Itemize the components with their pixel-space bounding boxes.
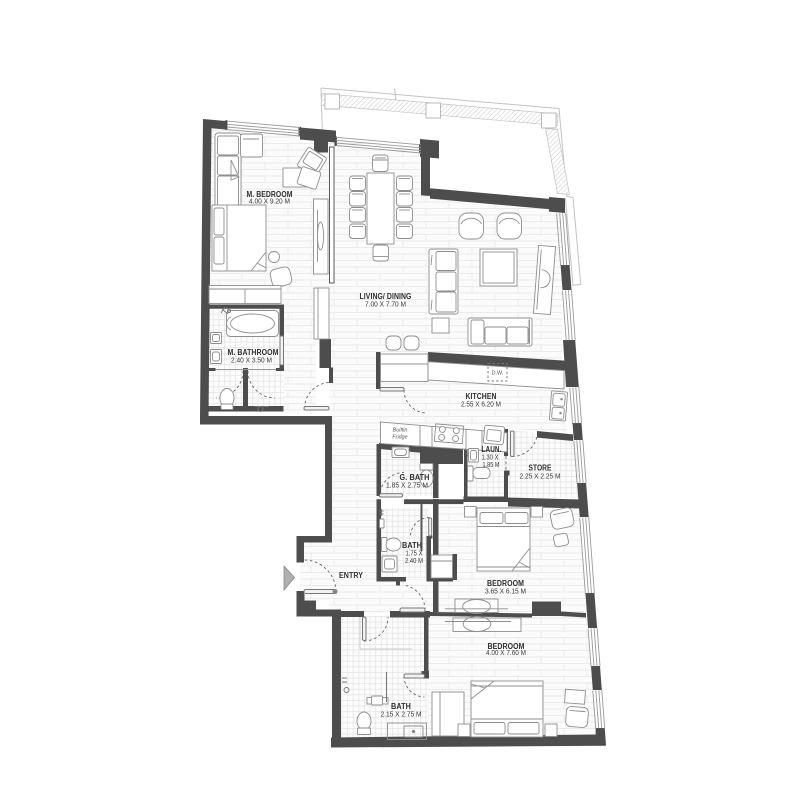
svg-text:2.40 M: 2.40 M bbox=[405, 556, 423, 565]
svg-text:1.85 X 2.75 M: 1.85 X 2.75 M bbox=[386, 481, 428, 490]
svg-text:2.55 X 6.20 M: 2.55 X 6.20 M bbox=[461, 400, 501, 409]
svg-text:3.65 X 6.15 M: 3.65 X 6.15 M bbox=[485, 587, 526, 596]
svg-text:Fridge: Fridge bbox=[392, 435, 407, 441]
svg-text:2.40 X 3.50 M: 2.40 X 3.50 M bbox=[231, 356, 272, 365]
svg-text:D.W.: D.W. bbox=[492, 371, 504, 377]
svg-text:ENTRY: ENTRY bbox=[339, 570, 363, 580]
svg-text:7.00 X 7.70 M: 7.00 X 7.70 M bbox=[365, 300, 406, 309]
svg-text:Builtin: Builtin bbox=[393, 428, 408, 434]
svg-text:2.25 X 2.25 M: 2.25 X 2.25 M bbox=[520, 472, 561, 481]
svg-text:4.00 X 9.20 M: 4.00 X 9.20 M bbox=[249, 197, 290, 206]
svg-text:4.00 X 7.60 M: 4.00 X 7.60 M bbox=[486, 648, 526, 657]
svg-text:2.15 X 2.75 M: 2.15 X 2.75 M bbox=[381, 710, 422, 719]
svg-text:1.85 M: 1.85 M bbox=[483, 460, 500, 469]
